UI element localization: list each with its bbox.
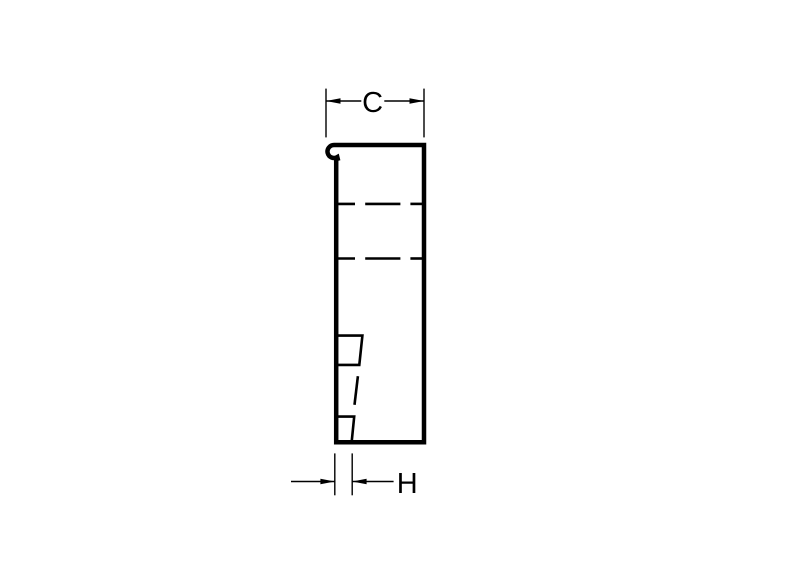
profile-outline xyxy=(328,145,425,442)
dim-c-arrowhead-right-icon xyxy=(410,98,425,104)
serration-detail xyxy=(338,336,363,441)
dim-h-arrowhead-left-pointing-icon xyxy=(352,479,366,485)
serration-upper-tab xyxy=(338,336,363,365)
serration-middle-segment xyxy=(355,376,358,405)
dim-h-label: H xyxy=(397,468,418,500)
dim-c-label: C xyxy=(362,87,383,119)
serration-lower-tab xyxy=(338,417,355,441)
dimension-c: C xyxy=(326,87,424,138)
dim-h-arrowhead-right-pointing-icon xyxy=(320,479,334,485)
technical-drawing-canvas: C H xyxy=(0,0,800,576)
dim-c-arrowhead-left-icon xyxy=(326,98,341,104)
profile-drawing-svg: C H xyxy=(0,0,800,576)
dimension-h: H xyxy=(291,453,418,500)
